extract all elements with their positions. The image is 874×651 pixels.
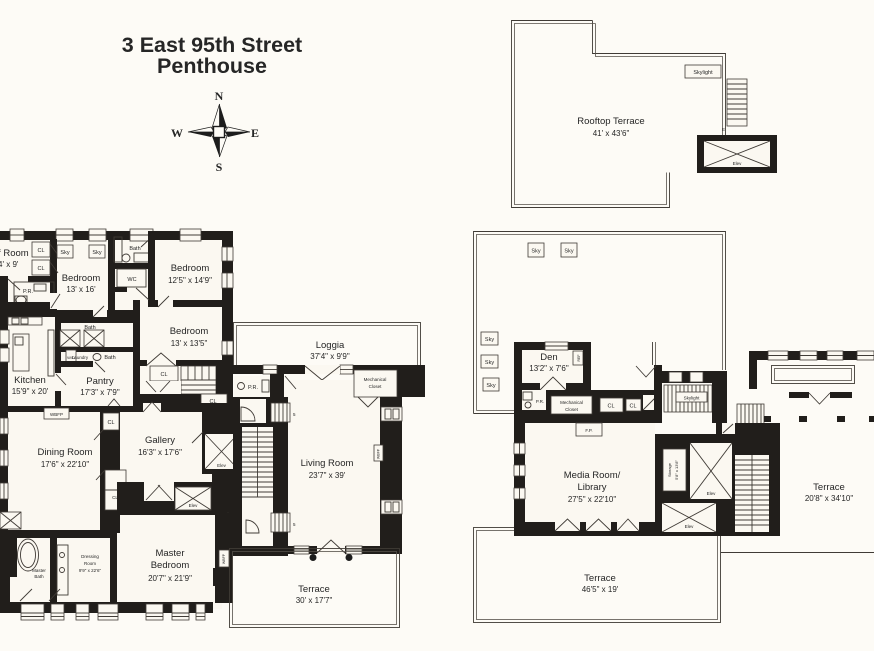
svg-text:Sky: Sky (564, 249, 573, 255)
svg-text:Media Room/: Media Room/ (564, 470, 621, 481)
svg-text:Mechanical: Mechanical (560, 400, 583, 405)
svg-text:Living Room: Living Room (301, 458, 354, 469)
svg-text:Laundry: Laundry (72, 355, 89, 360)
svg-text:Staff Room: Staff Room (0, 248, 29, 259)
svg-text:17'3" x 7'9": 17'3" x 7'9" (80, 388, 120, 397)
svg-text:Sky: Sky (92, 250, 101, 256)
svg-text:Mechanical: Mechanical (364, 377, 387, 382)
svg-text:46'5" x 19': 46'5" x 19' (582, 585, 619, 594)
svg-text:CL: CL (37, 266, 44, 272)
svg-text:Elev: Elev (685, 524, 695, 529)
svg-text:20'8" x 34'10": 20'8" x 34'10" (805, 494, 853, 503)
svg-text:REF: REF (577, 355, 581, 362)
svg-text:Sky: Sky (531, 249, 540, 255)
svg-text:WC: WC (127, 277, 136, 283)
svg-text:Terrace: Terrace (584, 573, 616, 584)
svg-text:30' x 17'7": 30' x 17'7" (296, 596, 333, 605)
svg-text:Gallery: Gallery (145, 435, 175, 446)
svg-text:Bath: Bath (104, 355, 115, 361)
svg-text:9'9" x 22'6": 9'9" x 22'6" (79, 568, 102, 573)
svg-text:CL: CL (37, 248, 44, 254)
svg-text:WBFP: WBFP (222, 553, 226, 564)
svg-text:13' x 13'5": 13' x 13'5" (171, 339, 208, 348)
svg-text:CL: CL (160, 372, 167, 378)
svg-text:Dining Room: Dining Room (38, 447, 93, 458)
svg-text:12'5" x 14'9": 12'5" x 14'9" (168, 276, 212, 285)
svg-text:Terrace: Terrace (813, 482, 845, 493)
svg-text:CL: CL (607, 404, 614, 410)
svg-text:Elev: Elev (707, 491, 717, 496)
svg-text:37'4" x 9'9": 37'4" x 9'9" (310, 352, 350, 361)
svg-text:CL: CL (107, 420, 114, 426)
svg-text:13' x 16': 13' x 16' (66, 285, 96, 294)
svg-text:Sky: Sky (485, 337, 494, 343)
svg-text:Penthouse: Penthouse (157, 54, 267, 78)
svg-text:WBFP: WBFP (377, 448, 381, 459)
svg-text:Storage: Storage (667, 462, 672, 477)
svg-text:23'7" x 39': 23'7" x 39' (309, 471, 346, 480)
svg-text:16'3" x 17'6": 16'3" x 17'6" (138, 448, 182, 457)
svg-text:Dressing: Dressing (81, 554, 99, 559)
svg-text:Library: Library (577, 482, 606, 493)
svg-text:Bedroom: Bedroom (62, 273, 101, 284)
svg-text:Skylight: Skylight (684, 396, 701, 401)
svg-text:Rooftop Terrace: Rooftop Terrace (577, 116, 644, 127)
svg-text:P.R.: P.R. (536, 399, 544, 404)
svg-text:S: S (216, 160, 223, 174)
svg-text:17'6" x 22'10": 17'6" x 22'10" (41, 460, 89, 469)
svg-text:Elev: Elev (217, 463, 227, 468)
svg-text:14' x 9': 14' x 9' (0, 260, 19, 269)
svg-text:CL: CL (629, 404, 636, 410)
svg-text:Sky: Sky (60, 250, 69, 256)
svg-text:27'5" x 22'10": 27'5" x 22'10" (568, 495, 616, 504)
svg-text:Closet: Closet (369, 384, 383, 389)
svg-text:Bedroom: Bedroom (171, 263, 210, 274)
svg-text:N: N (215, 89, 224, 103)
svg-text:W: W (171, 126, 183, 140)
svg-text:P.R.: P.R. (248, 385, 258, 391)
svg-text:Room: Room (84, 561, 96, 566)
svg-text:5'8" x 13'8": 5'8" x 13'8" (674, 460, 679, 480)
svg-text:Elev: Elev (189, 503, 199, 508)
svg-text:F.P.: F.P. (585, 428, 592, 433)
svg-text:P.R.: P.R. (23, 289, 33, 295)
svg-text:Bath: Bath (129, 246, 140, 252)
svg-text:Bath: Bath (34, 574, 44, 579)
svg-text:Bedroom: Bedroom (151, 560, 190, 571)
svg-text:13'2" x 7'6": 13'2" x 7'6" (529, 364, 569, 373)
svg-text:Master: Master (155, 548, 184, 559)
svg-text:Sky: Sky (485, 360, 494, 366)
svg-text:Kitchen: Kitchen (14, 375, 46, 386)
svg-text:Pantry: Pantry (86, 376, 114, 387)
svg-text:Skylight: Skylight (693, 70, 713, 76)
svg-text:E: E (251, 126, 259, 140)
svg-text:Closet: Closet (565, 407, 579, 412)
svg-text:Sky: Sky (486, 383, 495, 389)
svg-text:WBFP: WBFP (50, 412, 63, 417)
svg-text:15'9" x 20': 15'9" x 20' (12, 387, 49, 396)
svg-text:Master: Master (32, 568, 46, 573)
svg-text:E: E (722, 127, 725, 132)
svg-text:20'7" x 21'9": 20'7" x 21'9" (148, 574, 192, 583)
svg-text:Bedroom: Bedroom (170, 326, 209, 337)
svg-text:Loggia: Loggia (316, 340, 345, 351)
svg-text:41' x 43'6": 41' x 43'6" (593, 129, 630, 138)
svg-text:Terrace: Terrace (298, 584, 330, 595)
svg-text:Elev: Elev (733, 161, 743, 166)
svg-text:Den: Den (540, 352, 557, 363)
